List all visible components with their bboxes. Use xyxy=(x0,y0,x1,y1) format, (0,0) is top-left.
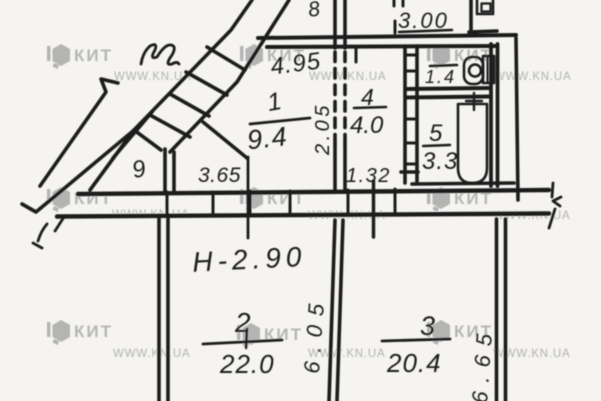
svg-text:9.4: 9.4 xyxy=(246,121,289,155)
svg-text:3.3: 3.3 xyxy=(422,148,458,175)
svg-text:1.4: 1.4 xyxy=(425,67,456,87)
svg-text:6.65: 6.65 xyxy=(467,324,497,401)
svg-text:WWW.KN.UA: WWW.KN.UA xyxy=(113,348,190,360)
svg-text:2.05: 2.05 xyxy=(312,102,334,156)
svg-text:3: 3 xyxy=(420,311,435,341)
svg-text:WWW.KN.UA: WWW.KN.UA xyxy=(494,71,571,83)
svg-text:5: 5 xyxy=(429,120,443,147)
svg-text:3.65: 3.65 xyxy=(198,164,241,187)
svg-text:22.0: 22.0 xyxy=(219,349,275,379)
svg-text:2: 2 xyxy=(234,307,251,338)
svg-text:Н-2.90: Н-2.90 xyxy=(192,241,308,278)
svg-text:4.0: 4.0 xyxy=(350,112,384,139)
svg-text:4: 4 xyxy=(361,84,374,110)
svg-text:КИТ: КИТ xyxy=(74,46,113,65)
svg-text:1.32: 1.32 xyxy=(346,165,391,187)
svg-text:20.4: 20.4 xyxy=(386,348,442,378)
svg-text:КИТ: КИТ xyxy=(74,322,113,341)
